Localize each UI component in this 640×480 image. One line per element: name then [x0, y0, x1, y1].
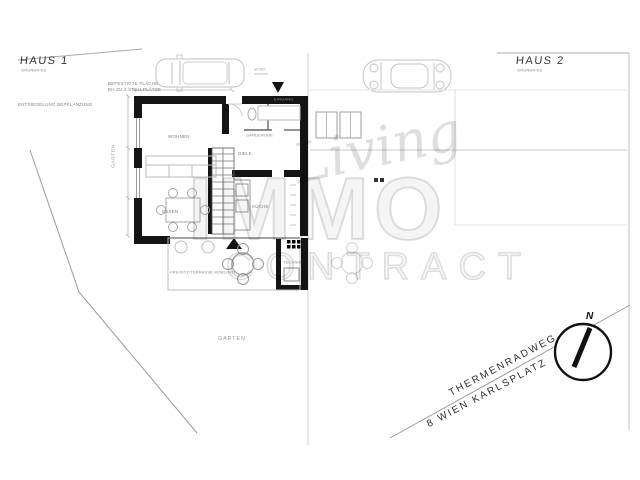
house1-walls: [134, 96, 308, 290]
stairs: [212, 148, 234, 234]
paved-area-label-line1: BEFESTIGTE FLÄCHE: [108, 81, 158, 86]
terrace-label: FREISITZ/TERRASSE MÖBLIERT: [170, 270, 236, 275]
car-suv: [156, 55, 244, 91]
haus2-subtitle: GRUNDRISS: [517, 68, 542, 73]
car-sports: [363, 60, 451, 92]
room-label-essen: ESSEN: [162, 209, 178, 214]
room-label-technik: TECHNIK: [283, 260, 302, 265]
kitchen-counter: [234, 106, 300, 230]
haus2-title: HAUS 2: [515, 55, 565, 67]
haus1-subtitle: GRUNDRISS: [21, 68, 46, 73]
room-label-eingang: EINGANG: [274, 97, 294, 102]
paved-area-label-line2: BH ZU 2 STELLPLÄTZE: [108, 87, 161, 92]
room-label-kueche: KÜCHE: [252, 204, 269, 209]
property-boundary-line: [30, 150, 197, 433]
level-mark-label: ±0,00: [254, 67, 265, 72]
house2-round-table: [341, 252, 363, 274]
garden-bottom-label: GARTEN: [218, 335, 246, 341]
sheet-border-lines: [18, 49, 629, 445]
haus1-title: HAUS 1: [19, 55, 69, 67]
level-marker-down-triangle: [272, 82, 284, 93]
room-label-garderobe: GARDEROBE: [246, 133, 273, 138]
garden-left-label: GARTEN: [110, 144, 116, 168]
unsealing-label: ENTSIEGELUNG BEPFLANZUNG: [18, 102, 93, 107]
room-label-diele: DIELE: [238, 151, 252, 156]
room-label-wohnen: WOHNEN: [168, 134, 190, 139]
terrace-marker-up-triangle: [226, 238, 242, 249]
compass-north-label: N: [586, 311, 593, 322]
terrace-pouf: [175, 241, 187, 253]
sofa: [146, 156, 216, 177]
terrace-pouf: [202, 241, 214, 253]
house1-windows: [137, 104, 301, 238]
house2-outline: [310, 90, 627, 284]
floor-plan-drawing: [0, 0, 640, 480]
floor-plan-sheet: Living IMMO CONTRACT HAUS 1 GRUNDRISS HA…: [0, 0, 640, 480]
